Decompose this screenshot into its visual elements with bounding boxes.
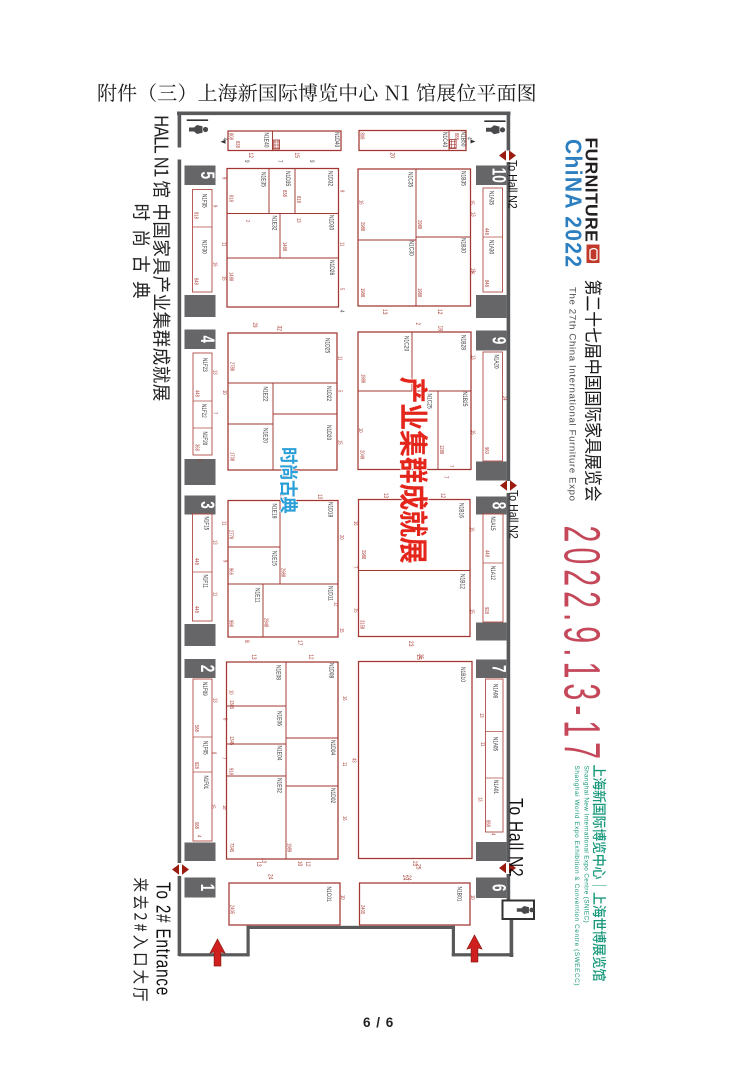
svg-text:N1E40: N1E40: [262, 133, 269, 148]
svg-text:6 / 6: 6 / 6: [363, 1015, 394, 1030]
svg-text:2: 2: [244, 220, 251, 223]
svg-text:13: 13: [469, 355, 476, 360]
svg-text:10: 10: [488, 168, 510, 183]
svg-text:13: 13: [260, 858, 267, 863]
svg-text:N1E15: N1E15: [270, 551, 277, 566]
svg-text:11: 11: [479, 742, 486, 747]
svg-text:16: 16: [211, 262, 218, 267]
svg-text:11: 11: [220, 242, 227, 247]
svg-text:13: 13: [478, 713, 485, 718]
svg-text:The 27th China International F: The 27th China International Furniture E…: [567, 287, 578, 502]
svg-text:13: 13: [469, 212, 476, 217]
svg-text:N1E08: N1E08: [274, 665, 281, 680]
svg-text:5: 5: [336, 390, 343, 393]
svg-text:N1D02: N1D02: [329, 788, 336, 803]
svg-text:2405: 2405: [228, 905, 235, 914]
svg-text:N1A01: N1A01: [492, 780, 499, 794]
svg-text:N1F20: N1F20: [201, 432, 208, 446]
svg-text:1288: 1288: [438, 445, 445, 454]
svg-text:N1D22: N1D22: [325, 386, 332, 401]
svg-text:N1A12: N1A12: [489, 566, 496, 580]
svg-text:32: 32: [275, 326, 282, 331]
svg-text:15: 15: [468, 609, 475, 614]
svg-text:N1E02: N1E02: [275, 778, 282, 793]
svg-text:N1B30: N1B30: [459, 238, 466, 253]
svg-text:N1B28: N1B28: [459, 335, 466, 350]
svg-text:966: 966: [227, 568, 234, 575]
svg-text:16: 16: [220, 276, 227, 281]
svg-text:N1A20: N1A20: [492, 355, 499, 369]
svg-text:9: 9: [338, 190, 345, 193]
svg-text:N1F30: N1F30: [200, 240, 207, 254]
svg-text:N1F15: N1F15: [202, 517, 209, 531]
svg-text:18: 18: [221, 805, 228, 810]
svg-text:N1B16: N1B16: [457, 503, 464, 518]
svg-text:9: 9: [221, 560, 228, 563]
svg-text:12: 12: [247, 153, 254, 158]
svg-text:N1C01: N1C01: [325, 887, 332, 902]
svg-text:N1E22: N1E22: [261, 387, 268, 402]
svg-text:13: 13: [316, 494, 323, 499]
svg-text:1738: 1738: [228, 452, 235, 461]
svg-text:4: 4: [196, 335, 218, 343]
svg-text:N1F22: N1F22: [200, 404, 207, 418]
svg-text:7: 7: [351, 566, 358, 569]
svg-text:688: 688: [193, 822, 200, 829]
svg-text:808: 808: [358, 133, 365, 140]
svg-text:10: 10: [469, 895, 476, 900]
svg-text:8: 8: [210, 752, 217, 755]
svg-text:N1F23: N1F23: [201, 358, 208, 372]
svg-text:N1F09: N1F09: [201, 682, 208, 696]
svg-text:6: 6: [488, 884, 510, 892]
svg-text:9: 9: [243, 160, 250, 163]
svg-text:448: 448: [193, 558, 200, 565]
svg-text:N1D35: N1D35: [284, 171, 291, 186]
svg-text:24: 24: [266, 874, 273, 880]
svg-text:10: 10: [339, 895, 346, 900]
svg-text:2049: 2049: [358, 450, 365, 459]
svg-text:13: 13: [211, 540, 218, 545]
svg-text:7: 7: [220, 757, 227, 760]
svg-text:11: 11: [341, 762, 348, 767]
svg-text:11: 11: [220, 521, 227, 526]
svg-text:960: 960: [483, 447, 490, 454]
svg-text:16: 16: [352, 521, 359, 526]
svg-text:N1C40: N1C40: [441, 132, 448, 147]
svg-text:N1F35: N1F35: [200, 194, 207, 208]
svg-text:2988: 2988: [359, 222, 366, 231]
svg-text:7345: 7345: [228, 843, 235, 852]
svg-text:N1E11: N1E11: [253, 588, 260, 603]
svg-text:8: 8: [221, 718, 228, 721]
svg-text:10: 10: [227, 690, 234, 695]
svg-text:7: 7: [276, 160, 283, 163]
svg-text:N1E20: N1E20: [261, 428, 268, 443]
svg-text:13: 13: [469, 268, 476, 273]
svg-text:N1C20: N1C20: [402, 336, 409, 351]
svg-text:7: 7: [488, 665, 510, 673]
svg-text:848: 848: [483, 280, 490, 287]
svg-text:N1B12: N1B12: [458, 574, 465, 589]
svg-text:20: 20: [338, 535, 345, 540]
svg-text:1988: 1988: [416, 288, 423, 297]
svg-text:588: 588: [193, 725, 200, 732]
svg-text:818: 818: [192, 212, 199, 219]
svg-text:888: 888: [484, 820, 491, 827]
svg-text:24: 24: [401, 875, 408, 881]
svg-text:Shanghai New International Exp: Shanghai New International Expo Centre (…: [582, 766, 589, 923]
svg-text:10: 10: [296, 861, 303, 866]
svg-text:928: 928: [193, 762, 200, 769]
svg-text:ChiNA 2022: ChiNA 2022: [560, 139, 586, 268]
svg-text:N1A15: N1A15: [489, 517, 496, 531]
svg-text:N1A05: N1A05: [491, 737, 498, 751]
svg-text:2788: 2788: [228, 362, 235, 371]
svg-text:13: 13: [382, 493, 389, 498]
svg-text:7: 7: [442, 476, 449, 479]
svg-text:838: 838: [281, 190, 288, 197]
svg-text:N1E18: N1E18: [270, 504, 277, 519]
svg-text:2948: 2948: [262, 618, 269, 627]
svg-text:17: 17: [296, 640, 303, 645]
svg-text:N1E04: N1E04: [275, 746, 282, 762]
svg-text:5: 5: [196, 171, 218, 179]
svg-text:18: 18: [436, 326, 443, 331]
svg-text:N1D32: N1D32: [326, 171, 333, 186]
svg-text:N1D26: N1D26: [328, 260, 335, 275]
svg-text:10: 10: [221, 390, 228, 395]
svg-text:1: 1: [196, 884, 218, 892]
svg-text:N1F05: N1F05: [201, 741, 208, 755]
svg-text:928: 928: [483, 607, 490, 614]
svg-text:2405: 2405: [359, 905, 366, 914]
svg-text:N1A35: N1A35: [487, 191, 494, 205]
svg-text:12: 12: [332, 602, 339, 607]
svg-text:16: 16: [357, 200, 364, 205]
svg-text:To Hall N2: To Hall N2: [506, 490, 519, 539]
svg-text:9: 9: [488, 337, 510, 345]
svg-text:1988: 1988: [359, 374, 366, 383]
svg-text:838: 838: [234, 141, 241, 148]
svg-text:998: 998: [227, 620, 234, 627]
svg-text:N1D04: N1D04: [329, 740, 336, 756]
svg-text:N1D40: N1D40: [333, 132, 340, 147]
svg-text:N1D30: N1D30: [327, 215, 334, 230]
svg-text:13: 13: [295, 218, 302, 223]
svg-text:848: 848: [192, 278, 199, 285]
svg-text:9: 9: [308, 160, 315, 163]
svg-text:N1F11: N1F11: [201, 575, 208, 588]
svg-text:2988: 2988: [279, 568, 286, 577]
svg-text:13: 13: [381, 309, 388, 314]
svg-text:9: 9: [220, 177, 227, 180]
svg-text:448: 448: [193, 606, 200, 613]
svg-text:16: 16: [341, 816, 348, 821]
svg-text:8: 8: [243, 640, 250, 643]
svg-text:N1D08: N1D08: [327, 663, 334, 678]
svg-text:448: 448: [483, 228, 490, 235]
svg-text:2988: 2988: [360, 550, 367, 559]
svg-text:818: 818: [227, 195, 234, 202]
svg-text:2778: 2778: [227, 530, 234, 539]
svg-text:N1B25: N1B25: [461, 392, 468, 407]
svg-text:4: 4: [338, 310, 345, 313]
svg-text:15: 15: [352, 608, 359, 613]
svg-text:23: 23: [407, 641, 414, 646]
svg-text:1345: 1345: [228, 736, 235, 745]
svg-text:4: 4: [195, 835, 202, 838]
svg-text:N1E35: N1E35: [259, 172, 266, 187]
svg-text:5: 5: [338, 288, 345, 291]
svg-text:N1B01: N1B01: [455, 887, 462, 902]
svg-text:N1B50: N1B50: [459, 132, 466, 147]
svg-text:23: 23: [411, 861, 418, 866]
svg-text:11: 11: [336, 356, 343, 361]
svg-text:12: 12: [307, 655, 314, 660]
svg-text:15: 15: [338, 628, 345, 633]
svg-text:13: 13: [476, 797, 483, 802]
svg-text:16: 16: [468, 527, 475, 532]
svg-text:N1C25: N1C25: [425, 394, 432, 409]
svg-text:25: 25: [415, 655, 422, 660]
svg-text:6: 6: [196, 459, 203, 462]
svg-text:1988: 1988: [359, 288, 366, 297]
svg-text:N1D18: N1D18: [326, 502, 333, 517]
svg-text:2: 2: [196, 665, 218, 673]
svg-text:10: 10: [357, 428, 364, 433]
svg-text:11: 11: [338, 242, 345, 247]
svg-text:N1A30: N1A30: [487, 240, 494, 254]
svg-text:N1E32: N1E32: [270, 216, 277, 231]
svg-text:N1F01: N1F01: [202, 776, 209, 790]
svg-text:N1B10: N1B10: [459, 667, 466, 682]
svg-text:8: 8: [488, 502, 510, 510]
svg-text:Shanghai World Expo Exhibition: Shanghai World Expo Exhibition & Convent…: [573, 766, 580, 987]
svg-text:368: 368: [193, 444, 200, 451]
svg-text:N1D11: N1D11: [326, 586, 333, 601]
svg-text:448: 448: [193, 390, 200, 397]
svg-text:N1D20: N1D20: [325, 425, 332, 440]
svg-text:N1A08: N1A08: [491, 684, 498, 698]
svg-text:7: 7: [447, 465, 454, 468]
svg-text:N1C35: N1C35: [406, 172, 413, 187]
svg-text:3: 3: [196, 501, 218, 509]
svg-text:3158: 3158: [358, 620, 365, 629]
svg-text:888: 888: [453, 133, 460, 140]
svg-text:9: 9: [211, 205, 218, 208]
svg-text:43: 43: [350, 758, 357, 763]
svg-text:N1C30: N1C30: [407, 241, 414, 256]
svg-text:11: 11: [211, 592, 218, 597]
svg-text:24: 24: [501, 396, 508, 401]
svg-text:13: 13: [211, 698, 218, 703]
svg-text:1488: 1488: [281, 242, 288, 251]
svg-text:7: 7: [211, 412, 218, 415]
svg-text:2: 2: [414, 323, 421, 326]
svg-text:13: 13: [211, 370, 218, 375]
svg-text:918: 918: [227, 768, 234, 775]
svg-text:15: 15: [336, 440, 343, 445]
svg-text:15: 15: [468, 200, 475, 205]
svg-text:2022.9.13-17: 2022.9.13-17: [553, 526, 610, 765]
svg-text:20: 20: [388, 153, 395, 158]
svg-text:To 2# Entrance: To 2# Entrance: [152, 882, 175, 996]
svg-text:29: 29: [251, 323, 258, 328]
svg-text:16: 16: [469, 430, 476, 435]
svg-text:818: 818: [295, 196, 302, 203]
svg-text:1488: 1488: [227, 272, 234, 281]
svg-text:15: 15: [209, 804, 216, 809]
svg-text:1989: 1989: [285, 843, 292, 852]
svg-text:13: 13: [250, 655, 257, 660]
svg-text:N1E06: N1E06: [275, 711, 282, 726]
svg-text:N1D25: N1D25: [323, 338, 330, 353]
svg-text:12: 12: [304, 862, 311, 867]
svg-text:2988: 2988: [416, 220, 423, 229]
svg-text:To Hall N2: To Hall N2: [505, 798, 527, 877]
svg-text:12: 12: [436, 309, 443, 314]
svg-text:15: 15: [293, 153, 300, 158]
svg-text:448: 448: [483, 550, 490, 557]
svg-text:4: 4: [489, 833, 496, 836]
svg-text:12: 12: [439, 493, 446, 498]
svg-text:16: 16: [341, 696, 348, 701]
svg-text:N1B35: N1B35: [459, 171, 466, 186]
svg-text:1305: 1305: [228, 700, 235, 709]
